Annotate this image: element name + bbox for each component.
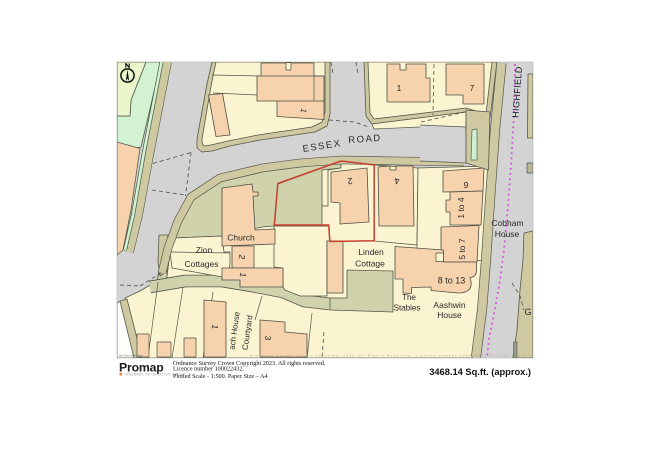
svg-text:Stables: Stables — [394, 304, 421, 313]
svg-text:0m 10m 20m 30m: 0m 10m 20m 30m — [119, 354, 144, 358]
svg-text:8 to 13: 8 to 13 — [438, 276, 466, 286]
svg-text:ROAD: ROAD — [348, 133, 382, 146]
svg-text:Plotted Scale - 1:500. Paper S: Plotted Scale - 1:500. Paper Size – A4 — [173, 373, 268, 380]
svg-text:House: House — [437, 310, 462, 320]
svg-text:5 to 7: 5 to 7 — [457, 238, 467, 260]
svg-text:Aashwin: Aashwin — [433, 300, 465, 310]
svg-text:Zion: Zion — [196, 245, 213, 255]
svg-text:House: House — [495, 229, 520, 239]
svg-text:1 to 4: 1 to 4 — [456, 197, 466, 219]
svg-text:3468.14 Sq.ft. (approx.): 3468.14 Sq.ft. (approx.) — [429, 367, 531, 377]
svg-text:Cottage: Cottage — [355, 259, 385, 269]
svg-text:7: 7 — [470, 83, 475, 93]
svg-text:1: 1 — [397, 83, 402, 93]
svg-text:Cobham: Cobham — [491, 218, 523, 228]
svg-text:9: 9 — [464, 180, 469, 190]
svg-text:Linden: Linden — [358, 247, 384, 257]
svg-text:4: 4 — [394, 176, 400, 186]
svg-text:Church: Church — [227, 233, 255, 243]
svg-text:Ordnance Survey Crown Copyrigh: Ordnance Survey Crown Copyright 2023 All… — [250, 354, 542, 358]
svg-text:The: The — [402, 293, 416, 302]
svg-text:G: G — [524, 307, 531, 317]
svg-text:Cottages: Cottages — [184, 259, 218, 269]
svg-text:Licence number 100022432.: Licence number 100022432. — [173, 366, 244, 373]
